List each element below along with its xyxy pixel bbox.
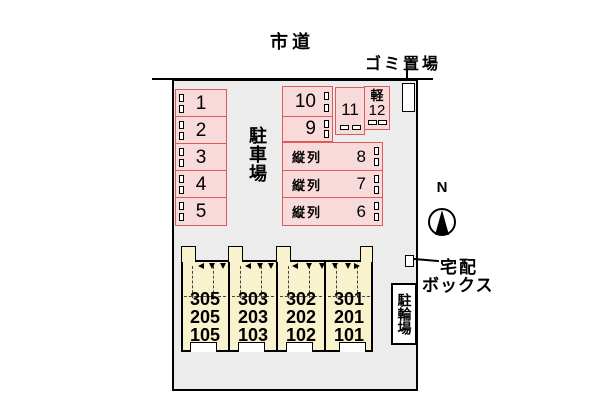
entrance-porch xyxy=(238,342,265,352)
tandem-label: 縦列 xyxy=(292,147,322,166)
parking-space-4: 4 xyxy=(175,170,227,199)
parking-space-10: 10 xyxy=(282,86,333,117)
balcony-arrow-icon xyxy=(345,263,351,269)
parking-space-9: 9 xyxy=(282,116,333,142)
wheel-stopper-icon xyxy=(368,120,377,125)
building-unit: 305 205 105 xyxy=(181,290,229,344)
wheel-stopper-icon xyxy=(374,175,379,183)
unit-floor-number: 305 xyxy=(181,290,229,308)
balcony-arrow-icon xyxy=(245,263,251,269)
wheel-stopper-icon xyxy=(374,202,379,210)
space-number: 2 xyxy=(196,120,207,142)
wheel-stopper-icon xyxy=(179,148,184,156)
space-number: 6 xyxy=(357,202,366,222)
balcony-arrow-icon xyxy=(292,263,298,269)
building-unit: 302 202 102 xyxy=(277,290,325,344)
building-stair-tab xyxy=(228,246,243,262)
unit-floor-number: 201 xyxy=(325,308,373,326)
delivery-box-label: ボックス xyxy=(422,271,494,296)
building-unit: 301 201 101 xyxy=(325,290,373,344)
unit-floor-number: 205 xyxy=(181,308,229,326)
space-number: 5 xyxy=(196,201,207,223)
garbage-area-label: ゴミ置場 xyxy=(365,50,441,74)
space-number: 3 xyxy=(196,147,207,169)
wheel-stopper-icon xyxy=(324,120,329,128)
balcony-arrow-icon xyxy=(354,263,360,269)
wheel-stopper-icon xyxy=(179,186,184,194)
wheel-stopper-icon xyxy=(374,213,379,221)
wheel-stopper-icon xyxy=(340,125,349,130)
site-plan: 市道 ゴミ置場 1 2 3 4 5 駐車場 10 9 xyxy=(0,0,600,400)
wheel-stopper-icon xyxy=(179,159,184,167)
wheel-stopper-icon xyxy=(324,104,329,112)
apartment-building: 305 205 105 303 203 103 302 202 102 301 … xyxy=(181,246,373,352)
balcony-arrow-icon xyxy=(198,263,204,269)
unit-floor-number: 301 xyxy=(325,290,373,308)
tandem-space-8: 縦列 8 xyxy=(282,142,383,171)
compass-north-label: N xyxy=(433,179,451,196)
balcony-arrow-icon xyxy=(209,263,215,269)
balcony-arrow-icon xyxy=(257,263,263,269)
parking-area-label: 駐車場 xyxy=(247,126,266,183)
balcony-arrow-icon xyxy=(306,263,312,269)
wheel-stopper-icon xyxy=(374,158,379,166)
tandem-space-6: 縦列 6 xyxy=(282,197,383,226)
tandem-label: 縦列 xyxy=(292,175,322,194)
wheel-stopper-icon xyxy=(324,130,329,138)
bicycle-parking-box: 駐輪場 xyxy=(391,283,417,345)
wheel-stopper-icon xyxy=(179,94,184,102)
unit-floor-number: 303 xyxy=(229,290,277,308)
building-stair-tab xyxy=(360,246,373,262)
tandem-space-7: 縦列 7 xyxy=(282,170,383,199)
parking-space-11: 11 xyxy=(335,87,365,135)
kei-car-label: 軽 xyxy=(370,89,383,103)
building-stair-tab xyxy=(181,246,196,262)
wheel-stopper-icon xyxy=(179,213,184,221)
garbage-box xyxy=(402,83,415,112)
building-stair-tab xyxy=(276,246,291,262)
entrance-porch xyxy=(190,342,217,352)
entrance-porch xyxy=(339,342,366,352)
wheel-stopper-icon xyxy=(374,186,379,194)
space-number: 12 xyxy=(369,103,386,118)
wheel-stopper-icon xyxy=(179,105,184,113)
space-number: 8 xyxy=(357,147,366,167)
wheel-stopper-icon xyxy=(179,132,184,140)
tandem-label: 縦列 xyxy=(292,202,322,221)
parking-space-1: 1 xyxy=(175,89,227,118)
road-label: 市道 xyxy=(252,28,332,54)
balcony-arrow-icon xyxy=(220,263,226,269)
wheel-stopper-icon xyxy=(352,125,361,130)
balcony-arrow-icon xyxy=(319,263,325,269)
space-number: 1 xyxy=(196,93,207,115)
bicycle-parking-label: 駐輪場 xyxy=(397,293,412,335)
unit-floor-number: 302 xyxy=(277,290,325,308)
space-number: 4 xyxy=(196,174,207,196)
balcony-arrow-icon xyxy=(268,263,274,269)
unit-floor-number: 202 xyxy=(277,308,325,326)
space-number: 7 xyxy=(357,174,366,194)
compass-needle-icon xyxy=(435,210,449,235)
entrance-porch xyxy=(286,342,313,352)
wheel-stopper-icon xyxy=(179,121,184,129)
wheel-stopper-icon xyxy=(179,202,184,210)
wheel-stopper-icon xyxy=(374,147,379,155)
delivery-box xyxy=(405,255,414,267)
unit-floor-number: 203 xyxy=(229,308,277,326)
wheel-stopper-icon xyxy=(378,120,387,125)
wheel-stopper-icon xyxy=(324,92,329,100)
balcony-arrow-icon xyxy=(332,263,338,269)
building-unit: 303 203 103 xyxy=(229,290,277,344)
space-number: 10 xyxy=(295,91,316,113)
wheel-stopper-icon xyxy=(179,175,184,183)
parking-space-3: 3 xyxy=(175,143,227,172)
space-number: 9 xyxy=(305,118,316,140)
parking-space-12-kei: 軽 12 xyxy=(364,86,390,130)
parking-space-5: 5 xyxy=(175,197,227,226)
parking-space-2: 2 xyxy=(175,116,227,145)
space-number: 11 xyxy=(341,100,359,120)
